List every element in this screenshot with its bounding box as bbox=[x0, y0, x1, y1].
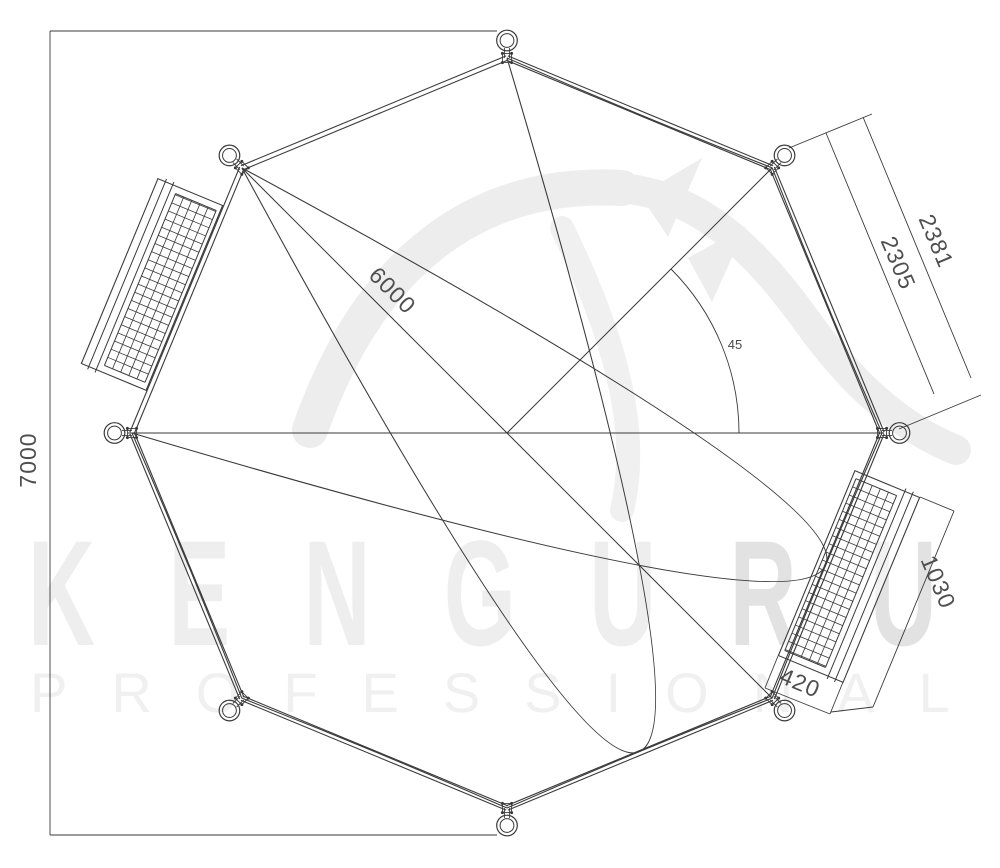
fitting-bolt bbox=[135, 436, 137, 438]
fitting-bolt bbox=[247, 697, 249, 699]
dim-label-angle: 45 bbox=[728, 337, 742, 352]
fitting-bolt bbox=[771, 704, 773, 706]
trampoline-top-view-drawing: KENGURU PROFESSIONAL 7000 6000 2381 2305… bbox=[0, 0, 1000, 868]
platform-left bbox=[80, 176, 224, 393]
fitting-bolt bbox=[876, 427, 878, 429]
fitting-bolt bbox=[234, 167, 236, 169]
frame-tube-line bbox=[506, 60, 771, 170]
fitting-bolt bbox=[501, 811, 503, 813]
fitting-bolt bbox=[501, 802, 503, 804]
frame-tube-line bbox=[508, 56, 773, 166]
fitting-bolt bbox=[778, 167, 780, 169]
dim-label-overall-height: 7000 bbox=[15, 432, 41, 487]
fitting-bolt bbox=[247, 167, 249, 169]
fitting-bolt bbox=[126, 436, 128, 438]
fitting-bolt bbox=[876, 436, 878, 438]
platform-frame bbox=[81, 179, 222, 391]
fitting-bolt bbox=[501, 61, 503, 63]
mat-edge-curve bbox=[507, 58, 772, 168]
frame-tube-line bbox=[241, 56, 506, 166]
watermark-brand-left: KENGU bbox=[28, 510, 730, 677]
fitting-bolt bbox=[126, 427, 128, 429]
fitting-bolt bbox=[765, 167, 767, 169]
anchor-ring bbox=[500, 34, 514, 48]
fitting-bolt bbox=[771, 173, 773, 175]
fitting-bolt bbox=[241, 173, 243, 175]
anchor-ring bbox=[778, 149, 792, 163]
fitting-bolt bbox=[510, 802, 512, 804]
fitting-bolt bbox=[778, 697, 780, 699]
anchor-ring bbox=[108, 426, 122, 440]
watermark-tagline: PROFESSIONAL bbox=[30, 661, 994, 724]
fitting-bolt bbox=[885, 436, 887, 438]
frame-tube-line bbox=[243, 60, 508, 170]
fitting-bolt bbox=[234, 697, 236, 699]
kangaroo-swoosh-logo bbox=[310, 158, 956, 510]
fitting-bolt bbox=[510, 61, 512, 63]
fitting-bolt bbox=[135, 427, 137, 429]
dim-label-segment-outer: 2381 bbox=[914, 210, 959, 271]
anchor-ring bbox=[223, 149, 237, 163]
anchor-ring bbox=[500, 819, 514, 833]
fitting-bolt bbox=[510, 811, 512, 813]
fitting-bolt bbox=[510, 52, 512, 54]
fitting-bolt bbox=[241, 704, 243, 706]
fitting-bolt bbox=[241, 691, 243, 693]
drawing-canvas: KENGURU PROFESSIONAL 7000 6000 2381 2305… bbox=[0, 0, 1000, 868]
dim-extension-line bbox=[920, 497, 954, 511]
fitting-bolt bbox=[501, 52, 503, 54]
fitting-bolt bbox=[765, 697, 767, 699]
fitting-bolt bbox=[241, 160, 243, 162]
fitting-bolt bbox=[771, 160, 773, 162]
fitting-bolt bbox=[885, 427, 887, 429]
